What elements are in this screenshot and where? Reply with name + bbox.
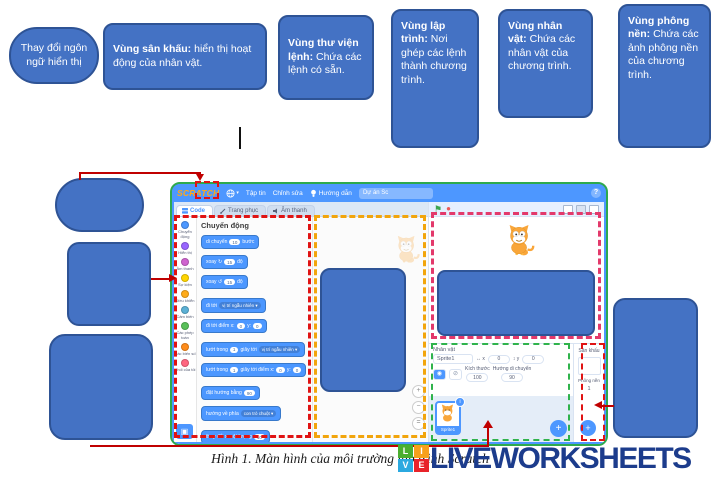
callout-code-region: Vùng lập trình: Nơi ghép các lệnh thành … [391,9,479,148]
liveworksheets-logo-text: LIVEWORKSHEETS [430,442,691,476]
category-control[interactable]: Điều khiển [174,290,196,304]
block-input[interactable]: 0 [293,367,302,373]
category-label: Âm thanh [176,267,193,272]
tab-sounds[interactable]: Âm thanh [267,205,315,216]
connector-palette-line [151,278,171,280]
language-globe-button[interactable]: ▾ [226,189,239,198]
category-sound[interactable]: Âm thanh [174,258,196,272]
logo-square-v: V [398,459,413,472]
block-input[interactable]: 0 [253,323,262,329]
block-input[interactable]: 10 [254,434,265,440]
block-input[interactable]: 15 [224,279,235,285]
block-dropdown[interactable]: con trỏ chuột ▾ [241,410,277,417]
connector-backdrop-arrowhead [594,401,602,409]
block-input[interactable]: 1 [230,347,239,353]
zoom-reset-button[interactable]: = [412,417,425,430]
category-dot [181,290,189,298]
stop-button[interactable]: ● [446,205,451,213]
help-button[interactable]: ? [591,188,601,198]
block-move-steps[interactable]: di chuyển10bước [201,235,259,249]
sprite-panel: Nhân vật Sprite1 ↔ x 0 ↕ y 0 ◉ ⊘ [429,344,573,442]
stage-header: ⚑ ● [429,202,604,217]
liveworksheets-logo: L I V E LIVEWORKSHEETS [398,442,691,476]
block-dropdown[interactable]: vị trí ngẫu nhiên ▾ [219,302,261,309]
size-label: Kích thước [465,366,490,372]
callout-block-library-region: Vùng thư viện lệnh: Chứa các lệnh có sẵn… [278,15,374,100]
menu-tutorials[interactable]: Hướng dẫn [310,189,352,198]
chevron-down-icon: ▾ [236,190,239,196]
category-looks[interactable]: Hiển thị [174,242,196,256]
category-dot [181,322,189,330]
category-label: Cảm biến [176,315,193,320]
tab-costumes[interactable]: Trang phục [214,205,266,216]
category-dot [181,359,189,367]
block-input[interactable]: 0 [276,367,285,373]
palette-header: Chuyển động [201,221,309,230]
large-stage-button[interactable] [576,205,586,214]
block-goto-xy[interactable]: đi tới điểm x:0y:0 [201,319,267,333]
small-stage-button[interactable] [563,205,573,214]
category-label: Sự kiện [178,283,192,288]
callout-sprite-region: Vùng nhân vật: Chứa các nhân vật của chư… [498,9,593,118]
connector-sprite-arrowhead [483,420,493,428]
block-point-direction[interactable]: đặt hướng bằng90 [201,386,260,400]
answer-box-right[interactable] [613,298,698,438]
category-myblocks[interactable]: Khối của tôi [174,359,196,373]
cat-sprite[interactable] [503,224,537,263]
show-sprite-button[interactable]: ◉ [433,369,446,380]
block-input[interactable]: 10 [229,239,240,245]
block-input[interactable]: 1 [230,367,239,373]
block-goto[interactable]: đi tớivị trí ngẫu nhiên ▾ [201,298,266,313]
logo-square-i: I [414,445,429,458]
category-dot [181,242,189,250]
code-blocks-icon [182,208,188,214]
logo-square-e: E [414,459,429,472]
category-dot [181,221,189,229]
answer-box-left-middle[interactable] [67,242,151,326]
callout-term: Vùng sân khấu: [113,43,191,55]
connector-language-arrowhead [196,174,204,181]
answer-box-left-bottom[interactable] [49,334,153,440]
hide-sprite-button[interactable]: ⊘ [449,369,462,380]
backdrop-count: 1 [587,386,590,392]
block-category-list: Chuyển động Hiển thị Âm thanh Sự kiện Đi… [174,217,197,442]
block-input[interactable]: 90 [244,390,255,396]
category-dot [181,306,189,314]
logo-square-l: L [398,445,413,458]
block-glide[interactable]: lướt trong1giây tớivị trí ngẫu nhiên ▾ [201,342,305,357]
category-motion[interactable]: Chuyển động [174,221,196,239]
connector-palette-arrowhead [169,274,177,282]
zoom-in-button[interactable]: + [412,385,425,398]
callout-backdrop-region: Vùng phông nền: Chứa các ảnh phông nền c… [618,4,711,148]
x-label: ↔ x [476,356,485,362]
brush-icon [220,208,226,214]
block-change-x[interactable]: thay đổi x một lượng10 [201,430,270,442]
menu-edit[interactable]: Chỉnh sửa [273,190,303,197]
category-label: Khối của tôi [175,368,196,373]
category-dot [181,274,189,282]
y-label: ↕ y [513,356,519,362]
x-input[interactable]: 0 [488,355,510,364]
tab-code[interactable]: Code [176,205,213,216]
lightbulb-icon [310,189,317,198]
backdrop-label: Phông nền [578,378,600,383]
text-cursor [239,127,241,149]
sprite-thumbnail-name: Sprite1 [437,426,459,433]
category-label: Hiển thị [178,251,192,256]
workspace-zoom-controls: + − = [412,385,425,430]
add-backdrop-button[interactable]: + [580,420,596,436]
category-label: Các phép toán [174,331,196,340]
scratch-menubar: SCRATCH ▾ Tập tin Chỉnh sửa Hướng dẫn Dự… [172,184,606,202]
zoom-out-button[interactable]: − [412,401,425,414]
block-turn-left[interactable]: xoay ↺15độ [201,275,248,289]
sprite-panel-title: Nhân vật [433,347,569,353]
connector-language-line [79,172,201,174]
block-input[interactable]: 0 [237,323,246,329]
workspace-watermark-cat [392,235,422,270]
editor-tabs: Code Trang phục Âm thanh [174,202,428,217]
connector-backdrop-line [601,405,614,407]
callout-language-change: Thay đổi ngôn ngữ hiển thị [9,27,99,84]
category-dot [181,258,189,266]
answer-box-code[interactable] [320,268,406,392]
block-input[interactable]: 15 [224,259,235,265]
callout-text: Thay đổi ngôn ngữ hiển thị [20,42,88,69]
sprite-name-input[interactable]: Sprite1 [433,354,473,364]
size-input[interactable]: 100 [466,373,488,382]
add-sprite-button[interactable]: + [550,420,567,437]
backdrop-thumbnail[interactable] [578,357,601,375]
category-label: Điều khiển [176,299,195,304]
category-dot [181,343,189,351]
category-label: Chuyển động [174,230,196,239]
speaker-icon [273,208,279,214]
direction-input[interactable]: 90 [501,373,523,382]
worksheet-page: Thay đổi ngôn ngữ hiển thị Vùng sân khấu… [0,0,712,482]
green-flag-button[interactable]: ⚑ [434,205,442,214]
direction-label: Hướng di chuyển [493,366,532,372]
category-operators[interactable]: Các phép toán [174,322,196,340]
block-dropdown[interactable]: vị trí ngẫu nhiên ▾ [259,346,301,353]
block-glide-xy[interactable]: lướt trong1giây tới điểm x:0y:0 [201,363,306,377]
fullscreen-button[interactable] [589,205,599,214]
menu-file[interactable]: Tập tin [246,190,266,197]
liveworksheets-logo-squares: L I V E [398,445,429,472]
add-extension-button[interactable]: ▣ [176,424,193,439]
category-variables[interactable]: Các biến số [174,343,196,357]
category-label: Các biến số [174,352,195,357]
y-input[interactable]: 0 [522,355,544,364]
callout-stage-region: Vùng sân khấu: hiển thị hoạt động của nh… [103,23,267,90]
block-palette: Chuyển động di chuyển10bước xoay ↻15độ x… [197,217,313,442]
sprite-list: Sprite1 i + [429,396,573,442]
stage-panel-title: Sân khấu [578,348,599,354]
answer-box-language[interactable] [55,178,144,232]
category-sensing[interactable]: Cảm biến [174,306,196,320]
category-events[interactable]: Sự kiện [174,274,196,288]
block-point-towards[interactable]: hướng về phíacon trỏ chuột ▾ [201,406,281,421]
answer-box-stage[interactable] [437,270,595,336]
project-name-input[interactable]: Dự án Sc [359,188,433,199]
scratch-logo: SCRATCH [177,188,219,198]
block-turn-right[interactable]: xoay ↻15độ [201,255,248,269]
sprite-info-badge[interactable]: i [455,397,465,407]
backdrop-panel: Sân khấu Phông nền 1 + [573,344,604,442]
globe-icon [226,189,235,198]
